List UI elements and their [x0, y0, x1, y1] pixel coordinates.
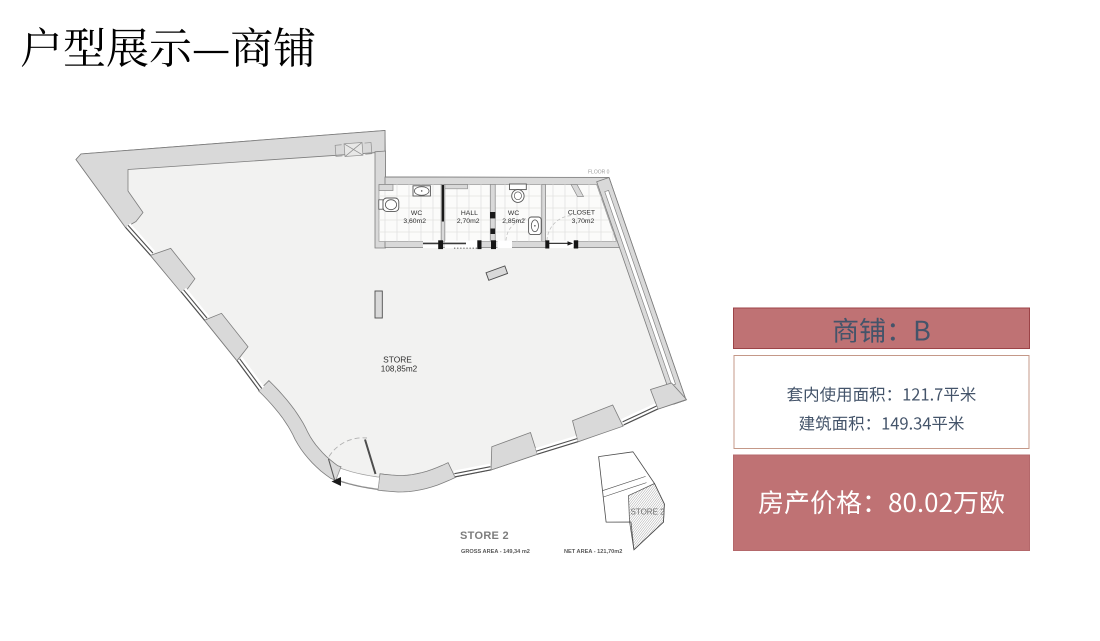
svg-text:STORE 2: STORE 2 — [631, 508, 666, 517]
svg-text:STORE 2: STORE 2 — [460, 530, 509, 542]
svg-text:3,70m2: 3,70m2 — [572, 218, 595, 225]
svg-text:3,60m2: 3,60m2 — [403, 218, 426, 225]
svg-text:NET AREA - 121,70m2: NET AREA - 121,70m2 — [564, 549, 622, 555]
svg-text:WC: WC — [411, 210, 422, 217]
svg-text:CLOSET: CLOSET — [568, 210, 595, 217]
svg-text:2,85m2: 2,85m2 — [502, 218, 525, 225]
svg-text:108,85m2: 108,85m2 — [381, 365, 418, 374]
svg-text:2,70m2: 2,70m2 — [457, 218, 480, 225]
svg-text:STORE: STORE — [383, 355, 412, 365]
svg-text:GROSS AREA - 149,34 m2: GROSS AREA - 149,34 m2 — [461, 549, 530, 555]
svg-text:WC: WC — [508, 210, 519, 217]
svg-text:FLOOR 0: FLOOR 0 — [588, 170, 610, 176]
svg-text:HALL: HALL — [461, 210, 478, 217]
